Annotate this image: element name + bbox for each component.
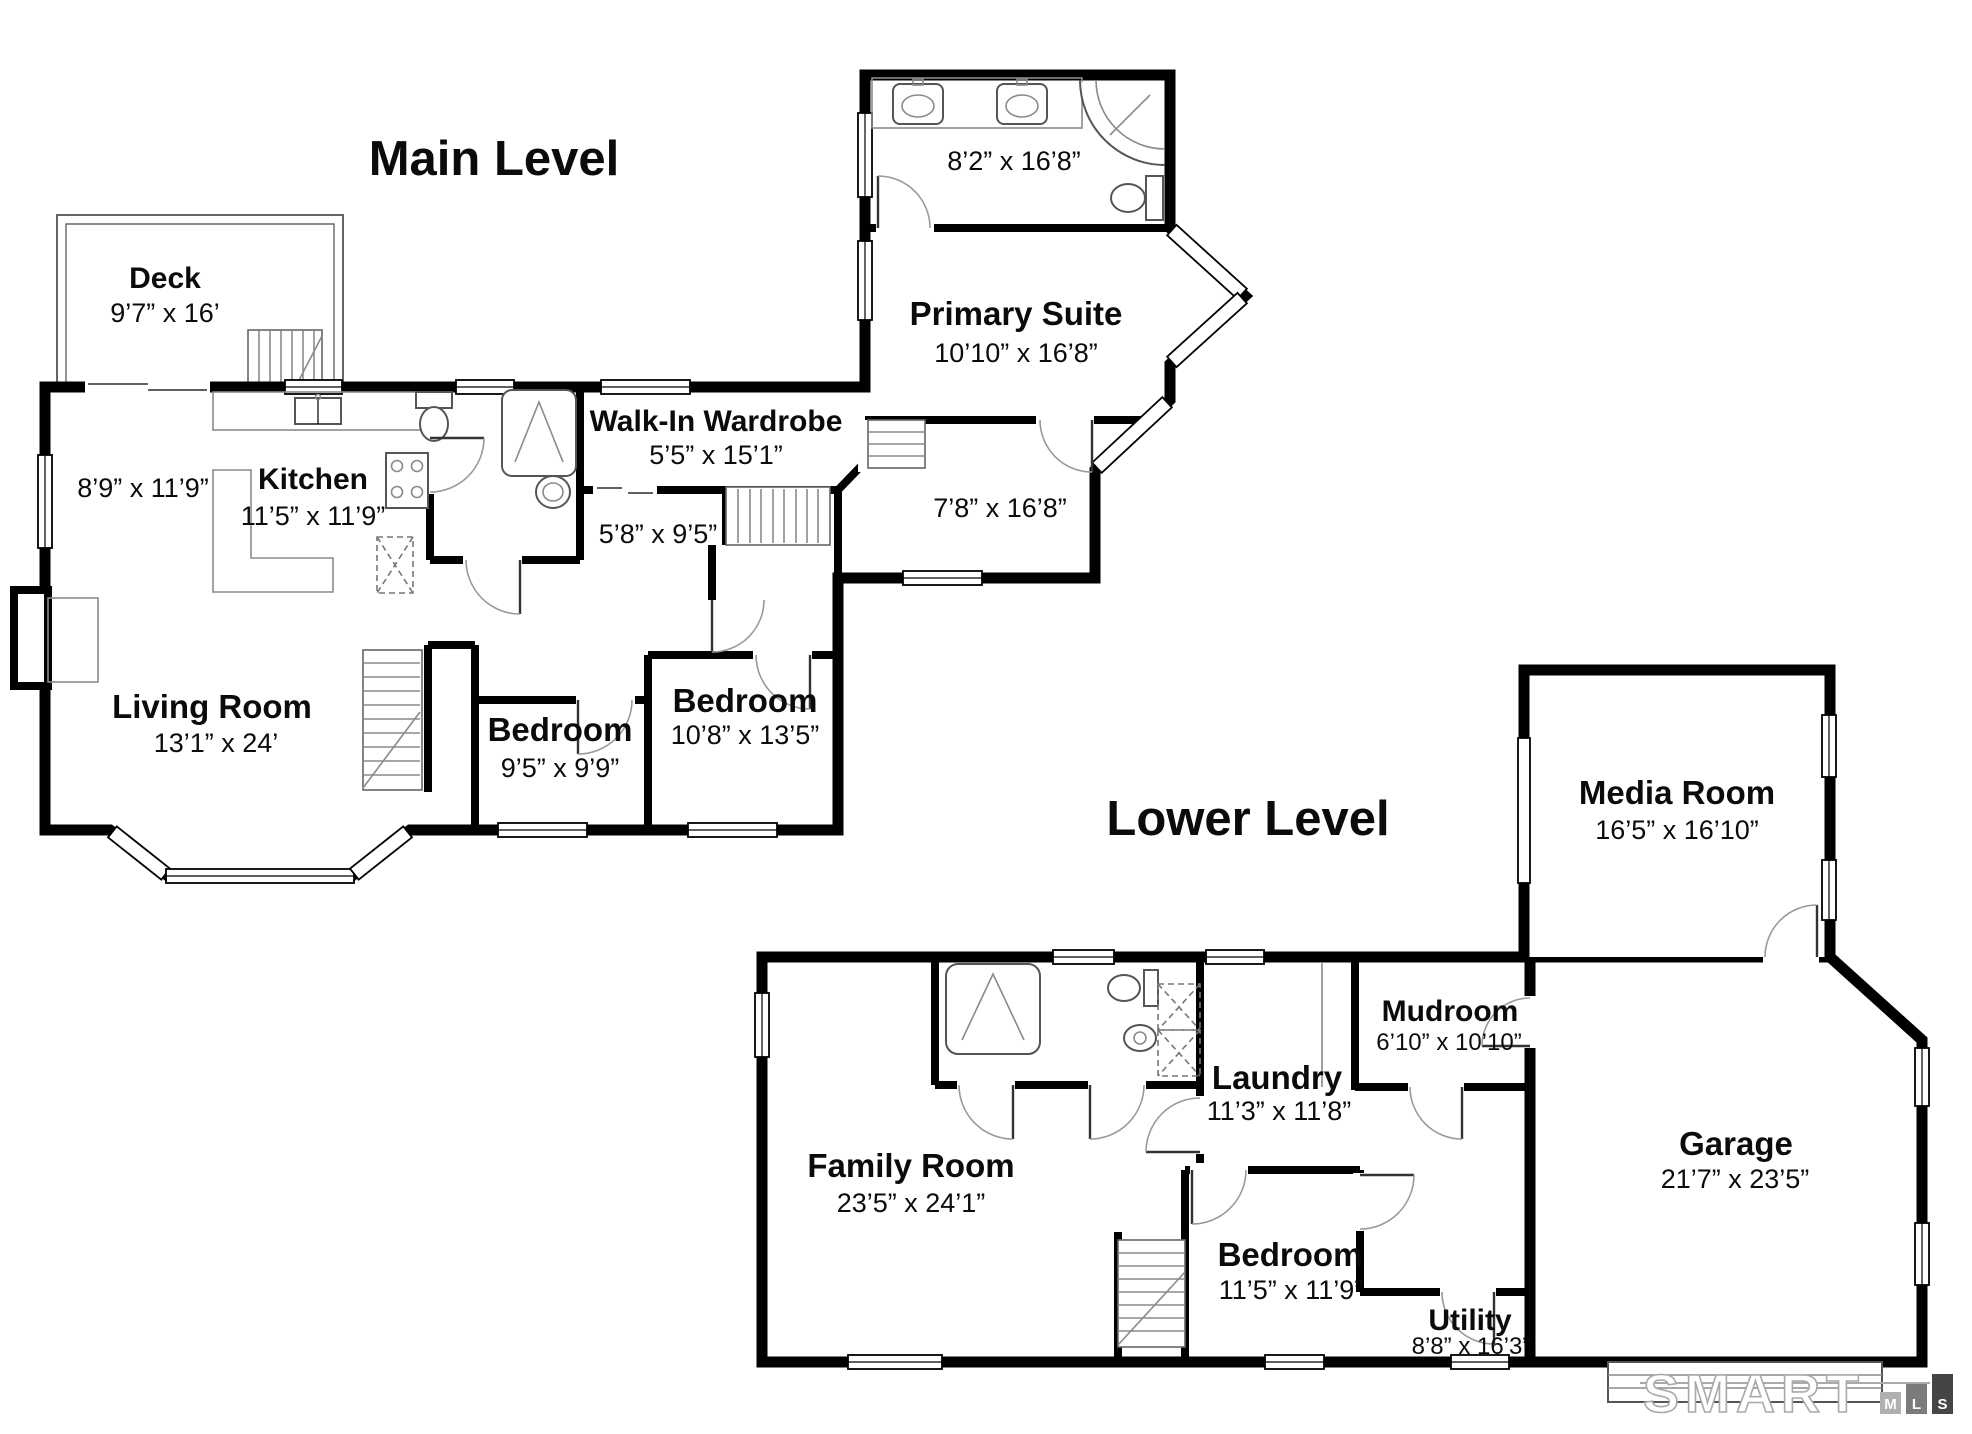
family-room-label: Family Room: [807, 1147, 1014, 1184]
kitchen-sink-icon: [295, 395, 341, 425]
window: [1822, 860, 1836, 920]
fireplace-icon: [14, 590, 48, 686]
deck-dims: 9’7” x 16’: [110, 298, 220, 328]
window: [1915, 1223, 1929, 1285]
lower-bedroom-label: Bedroom: [1218, 1236, 1363, 1273]
logo-text: SMART: [1643, 1364, 1865, 1424]
suite-steps-icon: [868, 420, 925, 468]
laundry-label: Laundry: [1212, 1059, 1343, 1096]
media-room-dims: 16’5” x 16’10”: [1595, 815, 1759, 845]
primary-bath-dims: 8’2” x 16’8”: [947, 146, 1081, 176]
toilet-icon: [416, 392, 452, 441]
media-room-walls: [1524, 670, 1830, 957]
family-room-dims: 23’5” x 24’1”: [837, 1188, 986, 1218]
main-stairs-down-icon: [726, 487, 830, 545]
mls-letter-s: S: [1937, 1396, 1947, 1413]
laundry-dims: 11’3” x 11’8”: [1207, 1096, 1352, 1126]
bedroom-right-label: Bedroom: [673, 682, 818, 719]
window: [1822, 715, 1836, 777]
mls-letter-m: M: [1884, 1396, 1897, 1413]
mls-letter-l: L: [1912, 1396, 1921, 1413]
window: [1265, 1355, 1324, 1369]
window: [1915, 1048, 1929, 1106]
living-room-dims: 13’1” x 24’: [154, 728, 279, 758]
lower-level-title: Lower Level: [1106, 792, 1389, 846]
lower-bedroom-dims: 11’5” x 11’9”: [1219, 1275, 1364, 1305]
dining-nook-dims: 8’9” x 11’9”: [77, 473, 209, 503]
stove-icon: [386, 453, 428, 508]
window: [858, 113, 872, 197]
front-room-dims: 7’8” x 16’8”: [933, 493, 1067, 523]
shower-stall-icon: [502, 390, 576, 476]
lower-shower-icon: [946, 964, 1040, 1054]
window: [858, 241, 872, 320]
garage-dims: 21’7” x 23’5”: [1661, 1164, 1810, 1194]
window: [1206, 950, 1264, 964]
logo-mls-boxes: M L S: [1880, 1374, 1953, 1414]
primary-suite-label: Primary Suite: [910, 295, 1123, 332]
main-level-plan: Main Level Deck 9’7” x 16’ 8’2” x 16’8” …: [14, 75, 1247, 883]
lower-stairs-icon: [1118, 1240, 1185, 1347]
wardrobe-dims: 5’5” x 15’1”: [649, 440, 783, 470]
living-room-label: Living Room: [112, 688, 312, 725]
lower-level-plan: Lower Level Media Room 16’5” x 16’10” Fa…: [755, 670, 1929, 1402]
window: [1053, 950, 1114, 964]
window: [903, 571, 982, 585]
bedroom-right-dims: 10’8” x 13’5”: [671, 720, 820, 750]
floor-plan-drawing: Main Level Deck 9’7” x 16’ 8’2” x 16’8” …: [0, 0, 1972, 1434]
lower-sink-icon: [1124, 1025, 1156, 1051]
window: [601, 380, 690, 394]
wardrobe-label: Walk-In Wardrobe: [590, 405, 843, 438]
bedroom-left-dims: 9’5” x 9’9”: [501, 753, 620, 783]
kitchen-label: Kitchen: [258, 463, 368, 496]
basement-stairs-icon: [363, 650, 422, 790]
bedroom-left-label: Bedroom: [488, 711, 633, 748]
window: [848, 1355, 942, 1369]
deck-label: Deck: [129, 262, 201, 295]
hall-dims: 5’8” x 9’5”: [599, 519, 718, 549]
window: [1518, 738, 1530, 883]
media-room-label: Media Room: [1579, 774, 1775, 811]
main-level-title: Main Level: [369, 132, 620, 186]
window: [688, 823, 777, 837]
utility-dims: 8’8” x 16’3”: [1412, 1333, 1531, 1360]
window: [38, 455, 52, 548]
window: [498, 823, 587, 837]
primary-suite-dims: 10’10” x 16’8”: [934, 338, 1098, 368]
window: [755, 993, 769, 1057]
deck-stairs-icon: [248, 330, 322, 387]
garage-label: Garage: [1679, 1125, 1793, 1162]
floor-plan-page: Main Level Deck 9’7” x 16’ 8’2” x 16’8” …: [0, 0, 1972, 1434]
bath-sink-icon: [536, 476, 570, 508]
smartmls-logo: SMART M L S: [1640, 1364, 1953, 1424]
kitchen-dims: 11’5” x 11’9”: [241, 501, 386, 531]
mudroom-dims: 6’10” x 10’10”: [1376, 1029, 1521, 1056]
mudroom-label: Mudroom: [1382, 995, 1519, 1028]
